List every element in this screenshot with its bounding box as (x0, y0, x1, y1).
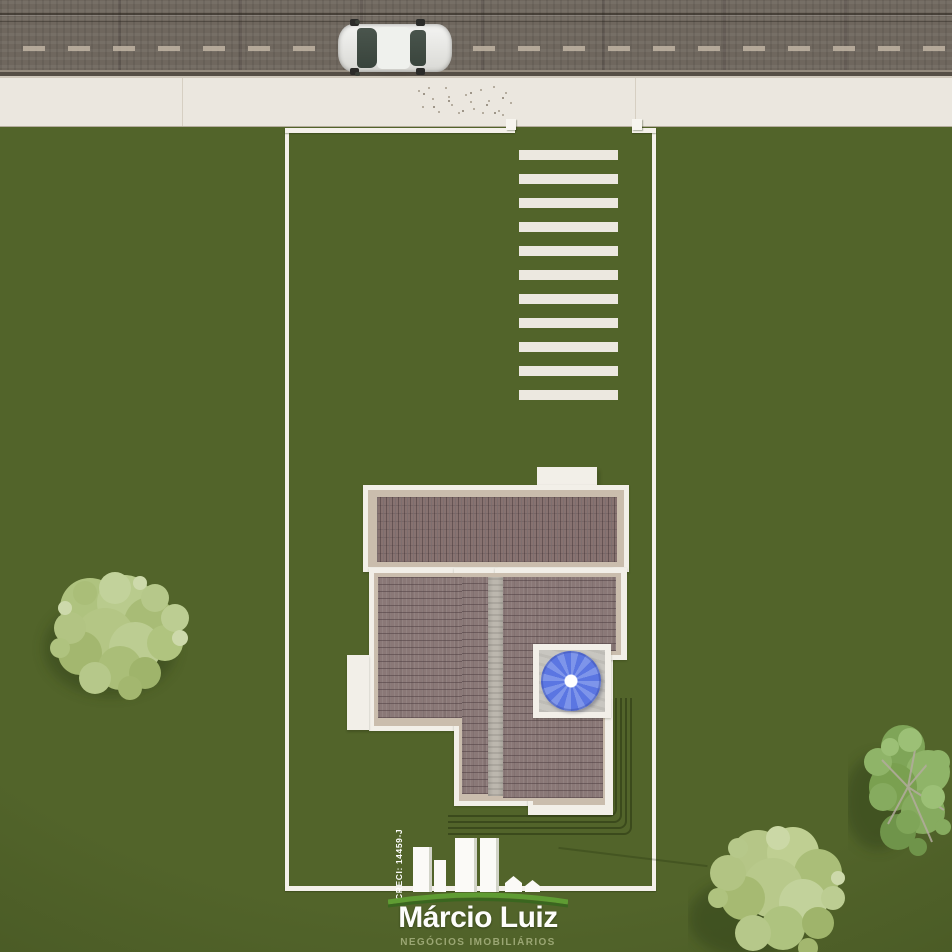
tree-right (848, 702, 952, 872)
asphalt-road (0, 0, 952, 76)
logo-brand-name: Márcio Luiz (378, 901, 578, 935)
gate-post (632, 119, 642, 130)
dirt-speckles (418, 90, 420, 92)
roof-tiles-left-lower (462, 577, 488, 794)
car-wheel (416, 19, 425, 26)
roof-center-walkway (488, 577, 503, 796)
lot-boundary-right (652, 129, 656, 890)
car-rear-window (410, 30, 426, 66)
car-mirror (355, 72, 360, 76)
umbrella-icon (541, 651, 601, 711)
lot-boundary-left (285, 129, 289, 890)
aerial-site-plan-render: CRECI: 14459-J Márcio Luiz NEGÓCIOS IMOB… (0, 0, 952, 952)
roof-tiles-garage-band (377, 497, 617, 562)
road-seam (0, 21, 952, 22)
roof-tiles-right-upper (503, 577, 616, 651)
tree-bottom-right (688, 808, 868, 952)
logo-tagline: NEGÓCIOS IMOBILIÁRIOS (378, 937, 578, 948)
gate-post (506, 119, 516, 130)
parked-car (338, 24, 452, 72)
road-seam-highlight (0, 15, 952, 16)
house-west-porch (347, 655, 369, 730)
car-wheel (416, 68, 425, 75)
tree-left (30, 548, 210, 718)
road-center-dashed-line (0, 46, 952, 51)
fence-shadow (558, 847, 707, 867)
car-windshield (357, 28, 377, 68)
driveway-paver-stripes (519, 150, 618, 400)
sidewalk-seam (182, 78, 183, 126)
car-mirror (355, 20, 360, 24)
sidewalk (0, 76, 952, 127)
car-roof (377, 27, 410, 69)
dirt-speckles (410, 84, 412, 86)
lot-boundary-top-left (285, 128, 515, 133)
